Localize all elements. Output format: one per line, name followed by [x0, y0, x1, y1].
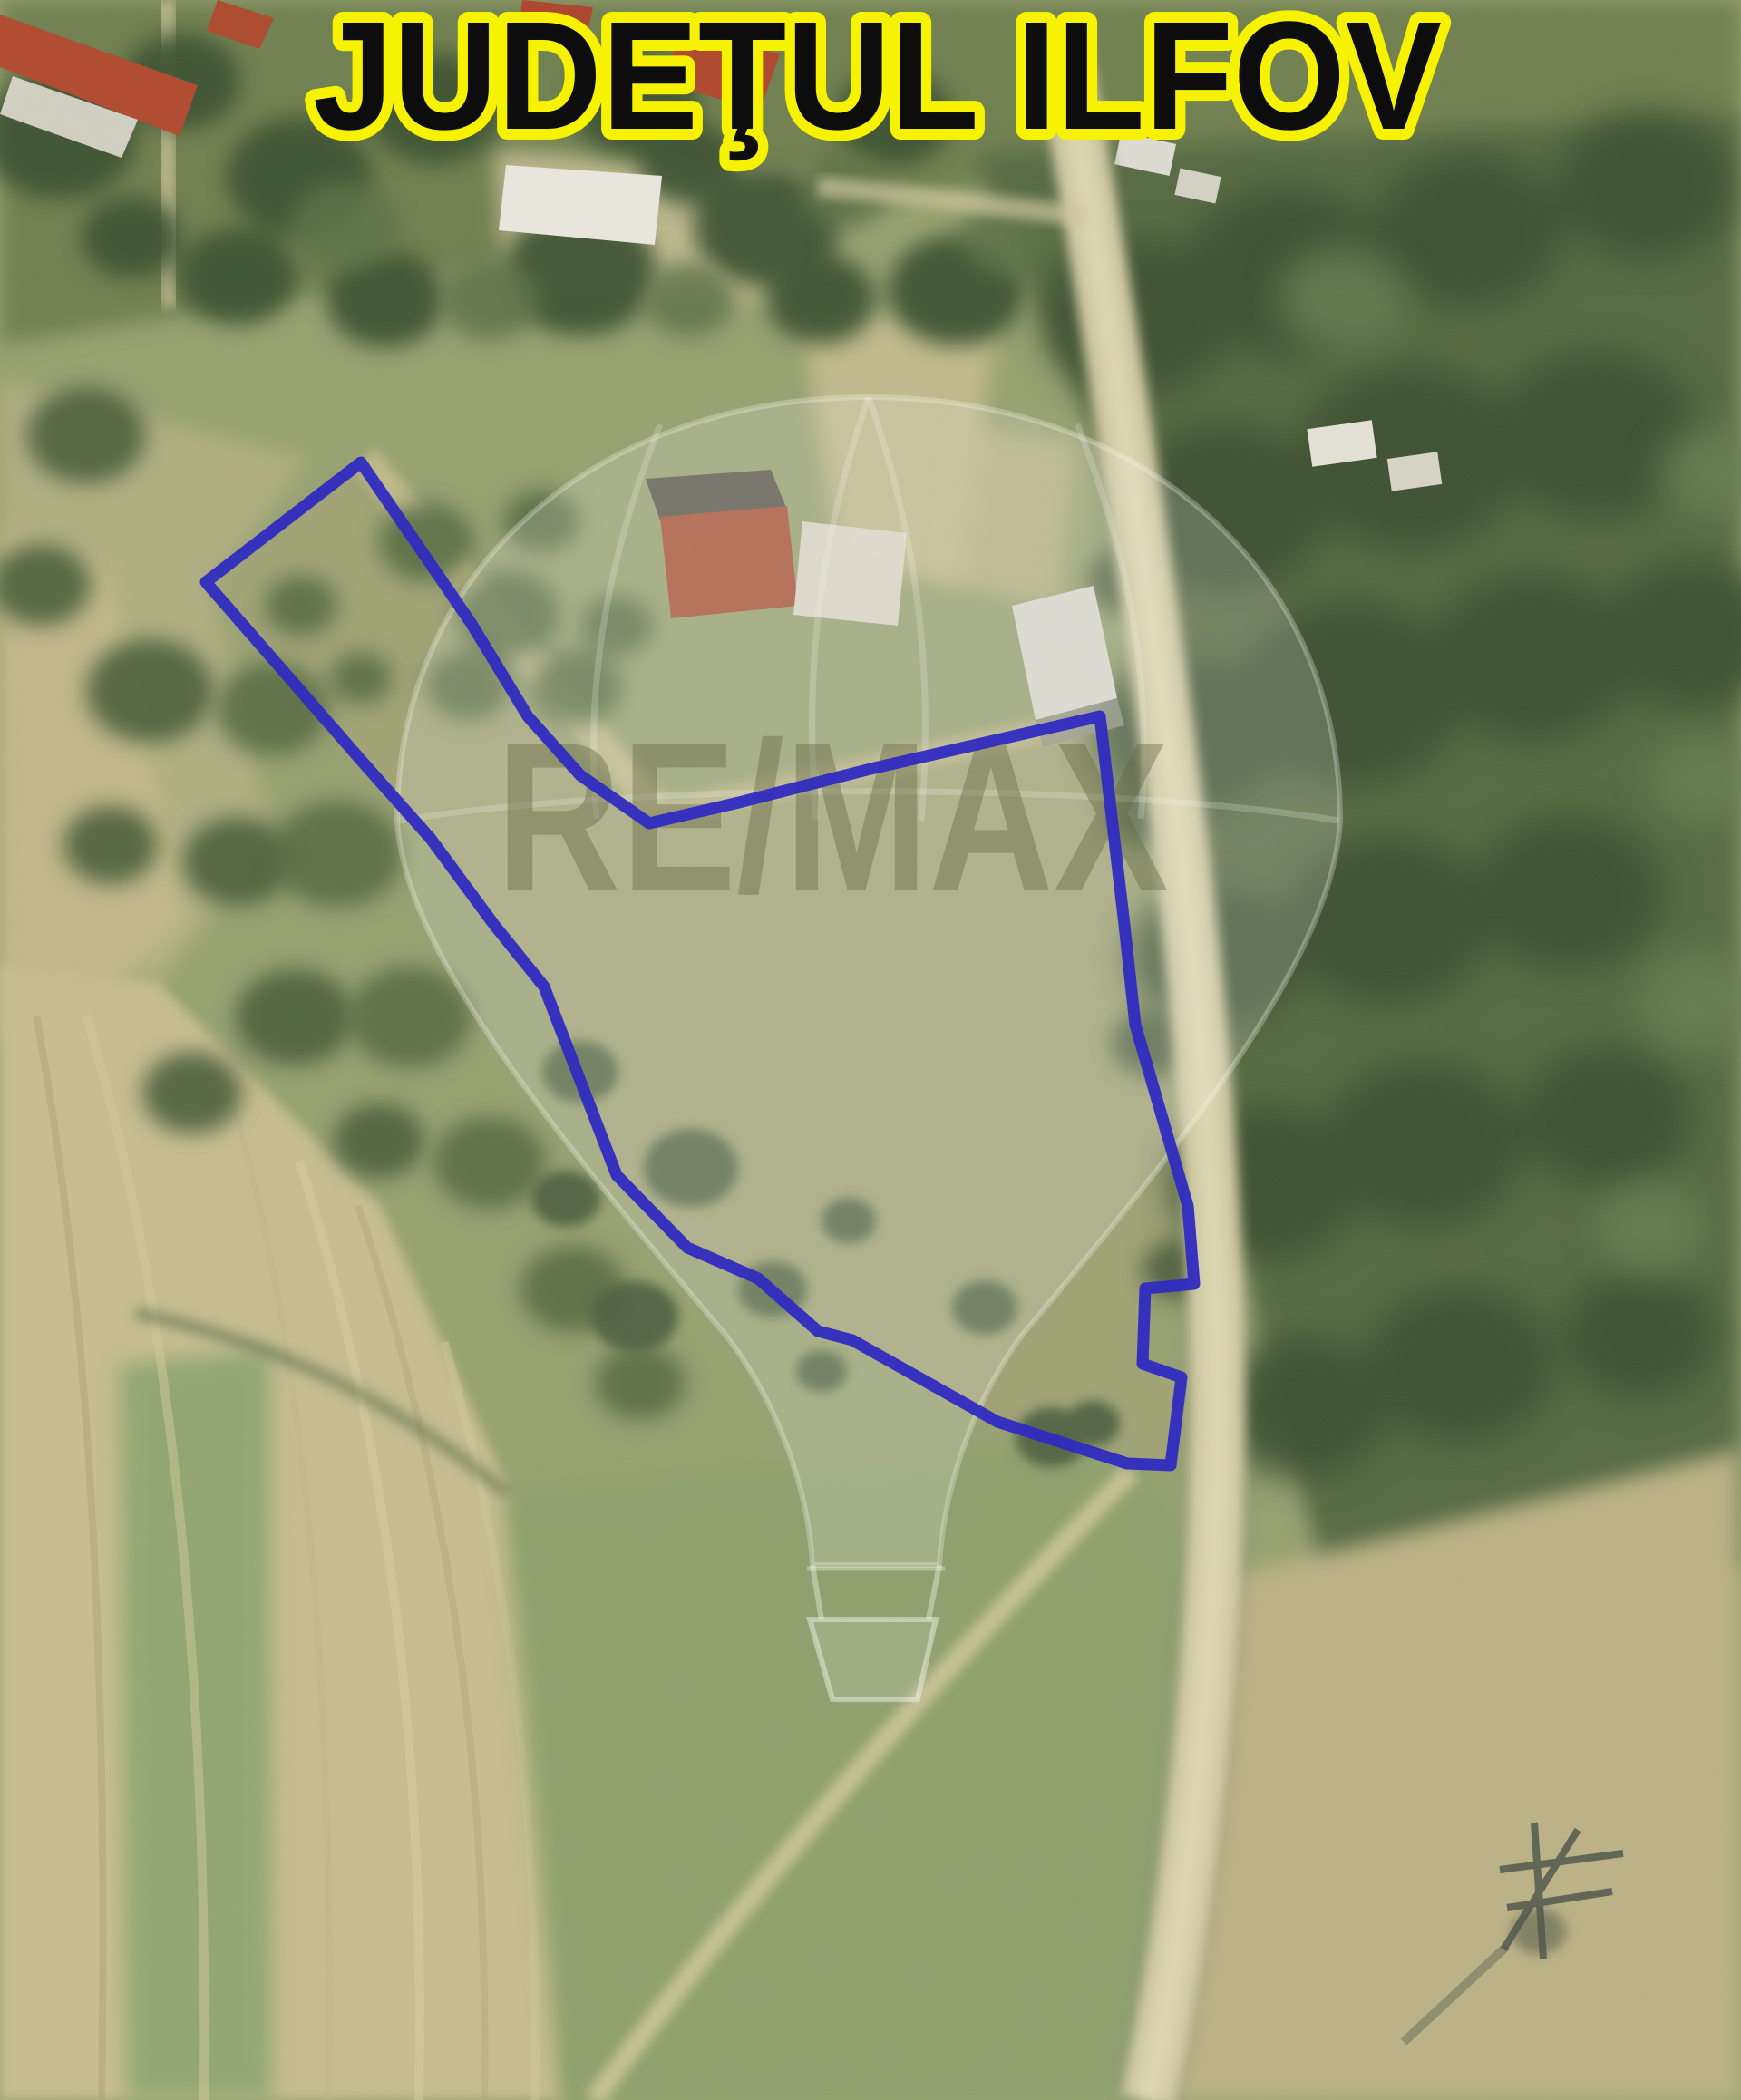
balloon-basket: [810, 1619, 936, 1699]
map-screenshot: RE/MAX JUDEŢUL ILFOV: [0, 0, 1741, 2100]
satellite-map: RE/MAX JUDEŢUL ILFOV: [0, 0, 1741, 2100]
watermark-text: RE/MAX: [496, 697, 1169, 936]
map-title: JUDEŢUL ILFOV: [313, 0, 1442, 162]
